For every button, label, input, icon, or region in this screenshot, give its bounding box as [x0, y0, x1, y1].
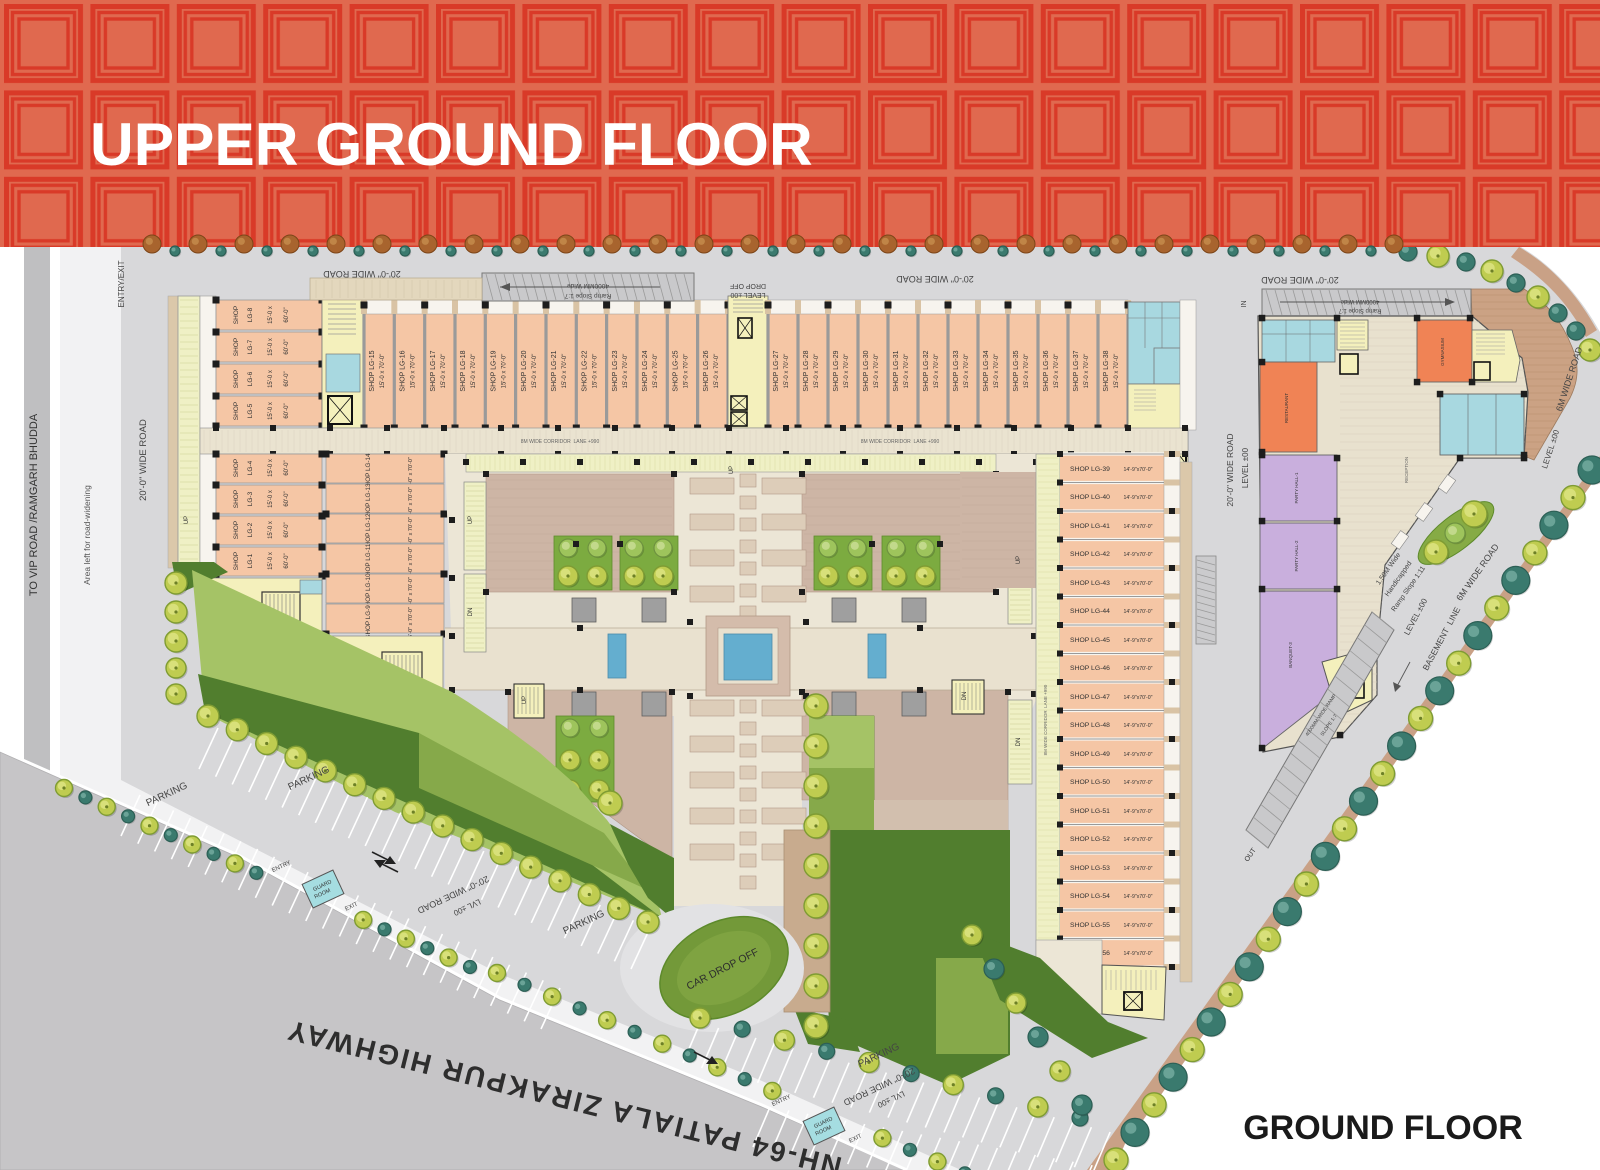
svg-text:20'-0" WIDE ROAD: 20'-0" WIDE ROAD	[1225, 433, 1235, 506]
svg-text:Area left for road-widening: Area left for road-widening	[82, 485, 92, 585]
svg-text:LG-7: LG-7	[247, 339, 254, 354]
svg-text:SHOP: SHOP	[233, 490, 240, 508]
svg-text:15'-0 x: 15'-0 x	[268, 338, 274, 356]
svg-text:RESTAURANT: RESTAURANT	[1284, 393, 1289, 423]
svg-text:SHOP LG-52: SHOP LG-52	[1070, 836, 1110, 843]
svg-text:15'-0 x 70'-0": 15'-0 x 70'-0"	[562, 354, 568, 389]
svg-text:TO VIP ROAD /RAMGARH BHUDDA: TO VIP ROAD /RAMGARH BHUDDA	[28, 413, 40, 596]
svg-text:15'-0 x 70'-0": 15'-0 x 70'-0"	[471, 354, 477, 389]
svg-text:SHOP LG-29: SHOP LG-29	[833, 350, 840, 391]
svg-text:15'-0 x 70'-0": 15'-0 x 70'-0"	[593, 354, 599, 389]
svg-text:SHOP LG-53: SHOP LG-53	[1070, 865, 1110, 872]
svg-text:14'-9"x70'-0": 14'-9"x70'-0"	[1123, 495, 1152, 501]
svg-text:60'-0": 60'-0"	[284, 371, 290, 386]
svg-text:15'-0 x: 15'-0 x	[268, 521, 274, 539]
svg-text:20'-0" WIDE ROAD: 20'-0" WIDE ROAD	[138, 419, 149, 501]
svg-text:60'-0": 60'-0"	[284, 307, 290, 322]
svg-text:LG-2: LG-2	[247, 522, 254, 537]
svg-text:SHOP LG-31: SHOP LG-31	[893, 350, 900, 391]
svg-text:SHOP LG-22: SHOP LG-22	[582, 350, 589, 391]
svg-text:LG-6: LG-6	[247, 371, 254, 386]
svg-text:SHOP LG-51: SHOP LG-51	[1070, 808, 1110, 815]
svg-text:14'-9"x70'-0": 14'-9"x70'-0"	[1123, 780, 1152, 786]
svg-text:SHOP LG-34: SHOP LG-34	[983, 350, 990, 391]
svg-text:LG-4: LG-4	[247, 460, 254, 475]
svg-text:15'-0 x: 15'-0 x	[268, 459, 274, 477]
svg-text:SHOP LG-9: SHOP LG-9	[365, 605, 372, 639]
svg-text:PARTY HALL-1: PARTY HALL-1	[1294, 472, 1299, 504]
svg-text:UP: UP	[1016, 556, 1022, 564]
svg-text:60'-0": 60'-0"	[284, 460, 290, 475]
svg-text:SHOP LG-48: SHOP LG-48	[1070, 722, 1110, 729]
svg-text:ENTRY/EXIT: ENTRY/EXIT	[117, 260, 126, 307]
svg-text:15'-0 x 70'-0": 15'-0 x 70'-0"	[844, 354, 850, 389]
svg-text:SHOP LG-25: SHOP LG-25	[673, 350, 680, 391]
svg-text:14'-9"x70'-0": 14'-9"x70'-0"	[1123, 951, 1152, 957]
svg-text:15'-0 x 70'-0": 15'-0 x 70'-0"	[653, 354, 659, 389]
svg-text:20'-0" WIDE ROAD: 20'-0" WIDE ROAD	[1261, 275, 1339, 285]
svg-text:60'-0": 60'-0"	[284, 522, 290, 537]
svg-text:15'-0 x 70'-0": 15'-0 x 70'-0"	[441, 354, 447, 389]
svg-text:SHOP LG-30: SHOP LG-30	[863, 350, 870, 391]
svg-text:SHOP LG-41: SHOP LG-41	[1070, 523, 1110, 530]
svg-text:SHOP LG-32: SHOP LG-32	[923, 350, 930, 391]
svg-text:14'-9"x70'-0": 14'-9"x70'-0"	[1123, 894, 1152, 900]
svg-text:14'-9"x70'-0": 14'-9"x70'-0"	[1123, 866, 1152, 872]
svg-text:SHOP LG-20: SHOP LG-20	[521, 350, 528, 391]
svg-text:SHOP LG-17: SHOP LG-17	[430, 350, 437, 391]
svg-text:PARTY HALL-2: PARTY HALL-2	[1294, 540, 1299, 572]
svg-text:15'-0 x 70'-0": 15'-0 x 70'-0"	[1114, 354, 1120, 389]
svg-text:14'-9"x70'-0": 14'-9"x70'-0"	[1123, 837, 1152, 843]
svg-text:SHOP: SHOP	[233, 402, 240, 420]
svg-text:14'-9"x70'-0": 14'-9"x70'-0"	[1123, 752, 1152, 758]
svg-text:8M WIDE CORRIDOR LANE +990: 8M WIDE CORRIDOR LANE +990	[861, 439, 940, 445]
svg-text:SHOP LG-54: SHOP LG-54	[1070, 893, 1110, 900]
svg-text:LG-1: LG-1	[247, 553, 254, 568]
svg-text:15'-0 x 70'-0": 15'-0 x 70'-0"	[411, 354, 417, 389]
svg-text:GYMNASIUM: GYMNASIUM	[1440, 338, 1445, 366]
svg-text:60'-0": 60'-0"	[284, 403, 290, 418]
svg-text:SHOP LG-15: SHOP LG-15	[369, 350, 376, 391]
svg-text:15'-0 x: 15'-0 x	[268, 306, 274, 324]
svg-text:SHOP LG-43: SHOP LG-43	[1070, 580, 1110, 587]
svg-text:SHOP: SHOP	[233, 521, 240, 539]
svg-text:4000MM Wide: 4000MM Wide	[1340, 298, 1379, 304]
svg-text:SHOP LG-27: SHOP LG-27	[773, 350, 780, 391]
svg-text:8M WIDE CORRIDOR LANE +990: 8M WIDE CORRIDOR LANE +990	[1043, 684, 1048, 755]
svg-text:GROUND FLOOR: GROUND FLOOR	[1243, 1109, 1523, 1147]
svg-text:15'-0 x 70'-0": 15'-0 x 70'-0"	[380, 354, 386, 389]
svg-text:SHOP LG-18: SHOP LG-18	[460, 350, 467, 391]
svg-text:SHOP LG-44: SHOP LG-44	[1070, 608, 1110, 615]
svg-text:20'-0" WIDE ROAD: 20'-0" WIDE ROAD	[323, 269, 401, 279]
svg-text:14'-9"x70'-0": 14'-9"x70'-0"	[1123, 695, 1152, 701]
svg-text:14'-9"x70'-0": 14'-9"x70'-0"	[1123, 723, 1152, 729]
svg-text:DN: DN	[1016, 738, 1022, 747]
svg-text:15'-0 x: 15'-0 x	[268, 490, 274, 508]
svg-text:8M WIDE CORRIDOR LANE +990: 8M WIDE CORRIDOR LANE +990	[521, 439, 600, 445]
svg-text:15'-0 x 70'-0": 15'-0 x 70'-0"	[934, 354, 940, 389]
svg-text:15'-0 x 70'-0": 15'-0 x 70'-0"	[684, 354, 690, 389]
svg-text:15'-0 x 70'-0": 15'-0 x 70'-0"	[994, 354, 1000, 389]
svg-text:SHOP LG-45: SHOP LG-45	[1070, 637, 1110, 644]
svg-text:Ramp Slope 1:7: Ramp Slope 1:7	[564, 292, 611, 299]
svg-text:15'-0 x 70'-0": 15'-0 x 70'-0"	[874, 354, 880, 389]
svg-text:SHOP LG-26: SHOP LG-26	[703, 350, 710, 391]
svg-text:14'-9"x70'-0": 14'-9"x70'-0"	[1123, 524, 1152, 530]
svg-text:15'-0 x 70'-0": 15'-0 x 70'-0"	[714, 354, 720, 389]
svg-text:UP: UP	[522, 696, 528, 704]
svg-text:15'-0 x 70'-0": 15'-0 x 70'-0"	[814, 354, 820, 389]
svg-text:20'-0" WIDE ROAD: 20'-0" WIDE ROAD	[896, 274, 974, 284]
svg-text:LG-5: LG-5	[247, 403, 254, 418]
svg-text:15'-0 x: 15'-0 x	[268, 552, 274, 570]
svg-text:SHOP LG-36: SHOP LG-36	[1043, 350, 1050, 391]
svg-text:SHOP LG-49: SHOP LG-49	[1070, 751, 1110, 758]
svg-text:15'-0 x: 15'-0 x	[268, 402, 274, 420]
svg-text:15'-0 x 70'-0": 15'-0 x 70'-0"	[964, 354, 970, 389]
svg-text:SHOP LG-50: SHOP LG-50	[1070, 779, 1110, 786]
svg-text:LG-8: LG-8	[247, 307, 254, 322]
svg-text:14'-9"x70'-0": 14'-9"x70'-0"	[1123, 923, 1152, 929]
svg-text:15'-0 x 70'-0": 15'-0 x 70'-0"	[623, 354, 629, 389]
svg-text:LEVEL ±00: LEVEL ±00	[1241, 447, 1250, 488]
svg-text:SHOP: SHOP	[233, 306, 240, 324]
svg-text:UP: UP	[729, 466, 735, 474]
svg-text:60'-0": 60'-0"	[284, 491, 290, 506]
svg-text:14'-9"x70'-0": 14'-9"x70'-0"	[1123, 638, 1152, 644]
svg-text:SHOP LG-47: SHOP LG-47	[1070, 694, 1110, 701]
svg-text:SHOP: SHOP	[233, 459, 240, 477]
svg-text:14'-9"x70'-0": 14'-9"x70'-0"	[1123, 467, 1152, 473]
svg-text:14'-9"x70'-0": 14'-9"x70'-0"	[1123, 666, 1152, 672]
svg-text:15'-0 x 70'-0": 15'-0 x 70'-0"	[1024, 354, 1030, 389]
svg-text:SHOP LG-23: SHOP LG-23	[612, 350, 619, 391]
svg-text:SHOP LG-28: SHOP LG-28	[803, 350, 810, 391]
svg-text:15'-0 x 70'-0": 15'-0 x 70'-0"	[1084, 354, 1090, 389]
svg-text:BANQUET-3: BANQUET-3	[1288, 642, 1293, 668]
svg-text:SHOP LG-37: SHOP LG-37	[1073, 350, 1080, 391]
svg-text:DN: DN	[962, 692, 968, 701]
svg-text:IN: IN	[1241, 301, 1248, 308]
svg-text:SHOP LG-38: SHOP LG-38	[1103, 350, 1110, 391]
svg-text:14'-9"x70'-0": 14'-9"x70'-0"	[1123, 552, 1152, 558]
svg-text:RECEPTION: RECEPTION	[1404, 457, 1409, 483]
svg-text:SHOP LG-16: SHOP LG-16	[400, 350, 407, 391]
svg-text:60'-0": 60'-0"	[284, 553, 290, 568]
svg-text:4000MM Wide: 4000MM Wide	[567, 282, 609, 289]
svg-text:Ramp Slope 1:7: Ramp Slope 1:7	[1338, 307, 1382, 313]
svg-text:SHOP LG-55: SHOP LG-55	[1070, 922, 1110, 929]
svg-text:SHOP LG-40: SHOP LG-40	[1070, 494, 1110, 501]
svg-text:DN: DN	[468, 608, 474, 617]
svg-text:SHOP: SHOP	[233, 338, 240, 356]
svg-text:14'-9"x70'-0": 14'-9"x70'-0"	[1123, 581, 1152, 587]
svg-text:DROP OFF: DROP OFF	[730, 282, 766, 289]
svg-text:SHOP LG-39: SHOP LG-39	[1070, 466, 1110, 473]
svg-text:SHOP LG-35: SHOP LG-35	[1013, 350, 1020, 391]
svg-text:SHOP LG-46: SHOP LG-46	[1070, 665, 1110, 672]
svg-text:LEVEL ±00: LEVEL ±00	[730, 291, 765, 298]
svg-text:SHOP: SHOP	[233, 370, 240, 388]
svg-text:15'-0 x 70'-0": 15'-0 x 70'-0"	[532, 354, 538, 389]
svg-text:SHOP LG-21: SHOP LG-21	[551, 350, 558, 391]
svg-text:SHOP: SHOP	[233, 552, 240, 570]
svg-text:15'-0 x 70'-0": 15'-0 x 70'-0"	[784, 354, 790, 389]
svg-text:UP: UP	[468, 516, 474, 524]
svg-text:15'-0 x: 15'-0 x	[268, 370, 274, 388]
svg-text:SHOP LG-24: SHOP LG-24	[642, 350, 649, 391]
svg-text:15'-0 x 70'-0": 15'-0 x 70'-0"	[1054, 354, 1060, 389]
svg-text:15'-0 x 70'-0": 15'-0 x 70'-0"	[904, 354, 910, 389]
svg-text:LG-3: LG-3	[247, 491, 254, 506]
svg-text:60'-0": 60'-0"	[284, 339, 290, 354]
svg-text:14'-9"x70'-0": 14'-9"x70'-0"	[1123, 809, 1152, 815]
svg-text:SHOP LG-19: SHOP LG-19	[491, 350, 498, 391]
svg-text:UPPER GROUND FLOOR: UPPER GROUND FLOOR	[90, 110, 813, 178]
svg-text:SHOP LG-42: SHOP LG-42	[1070, 551, 1110, 558]
svg-text:SHOP LG-33: SHOP LG-33	[953, 350, 960, 391]
svg-text:14'-9"x70'-0": 14'-9"x70'-0"	[1123, 609, 1152, 615]
svg-text:15'-0 x 70'-0": 15'-0 x 70'-0"	[502, 354, 508, 389]
svg-text:UP: UP	[184, 516, 190, 524]
